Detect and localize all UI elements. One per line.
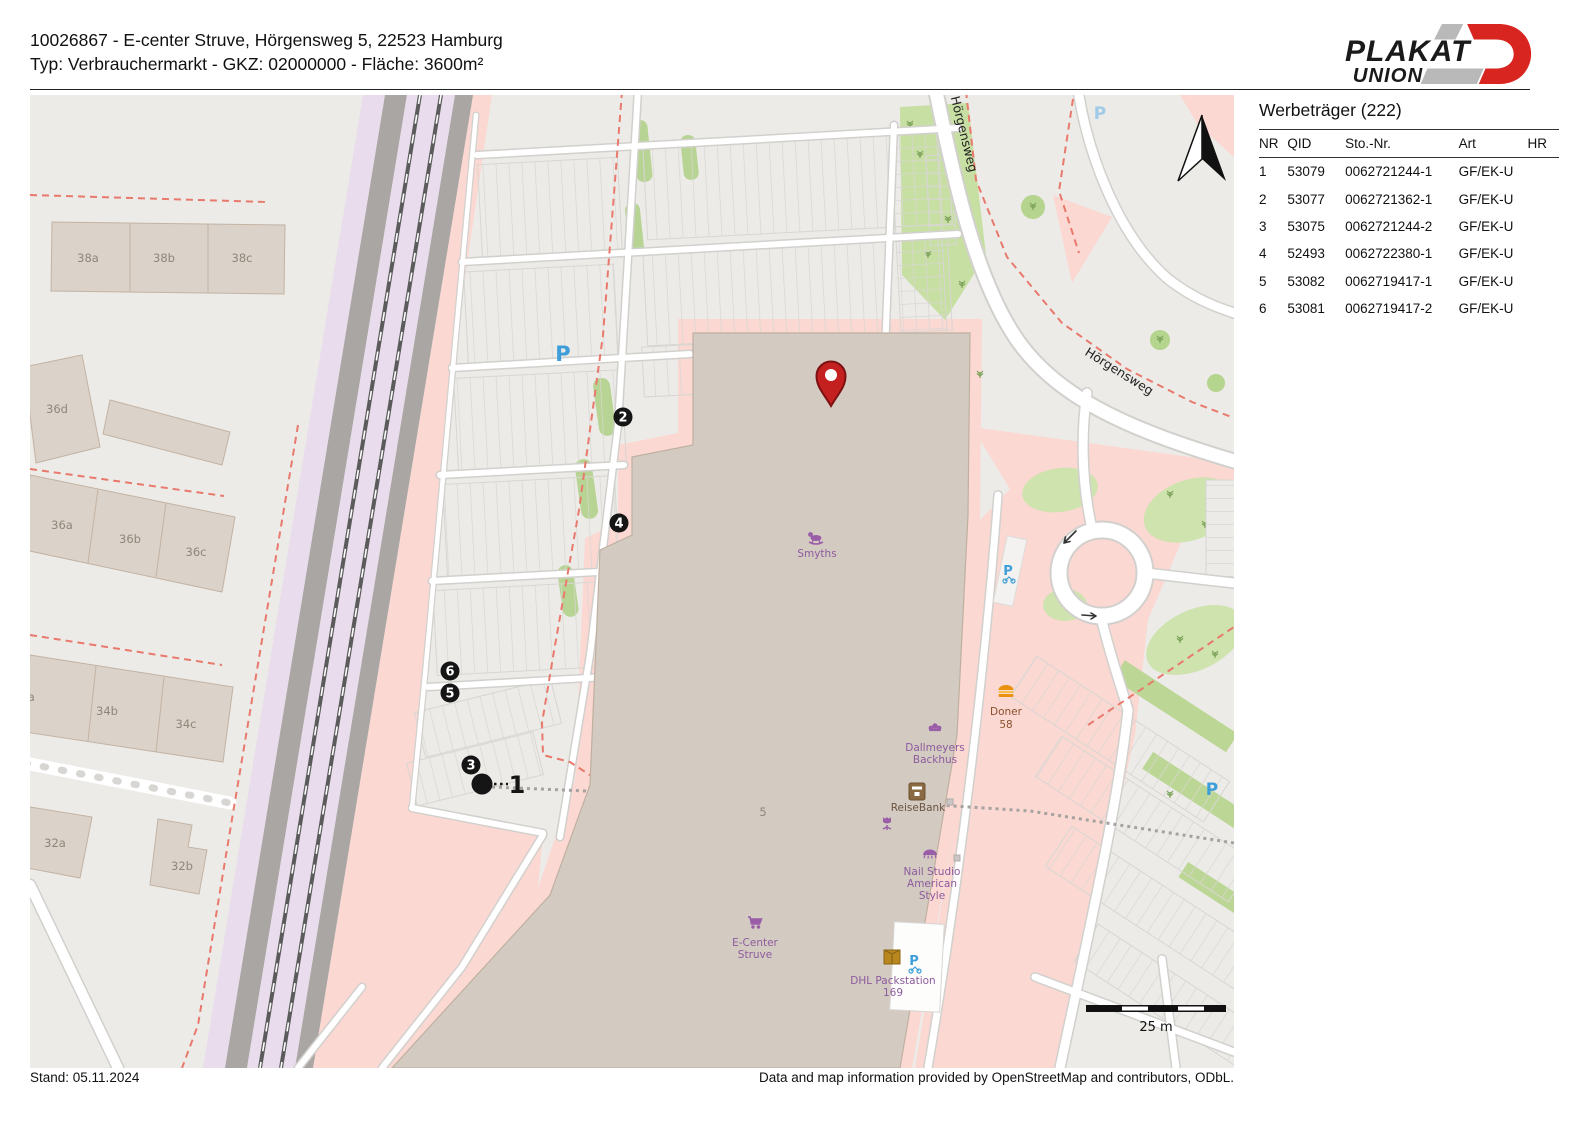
parking-p-bottom-icon: P	[1206, 780, 1218, 800]
cell-nr: 5	[1259, 268, 1287, 295]
header-divider	[30, 89, 1530, 90]
cell-hr	[1528, 240, 1559, 267]
bldg-label-32a: 32a	[44, 836, 66, 850]
cell-qid: 53079	[1287, 158, 1345, 186]
table-row: 5 53082 0062719417-1 GF/EK-U	[1259, 268, 1559, 295]
osm-attribution: Data and map information provided by Ope…	[759, 1070, 1234, 1085]
logo-word1: PLAKAT	[1345, 35, 1472, 68]
marker-1-dot	[472, 774, 493, 795]
cell-hr	[1528, 268, 1559, 295]
scale-label: 25 m	[1139, 1020, 1172, 1035]
logo-word2: UNION	[1353, 65, 1424, 86]
report-page: 10026867 - E-center Struve, Hörgensweg 5…	[0, 0, 1587, 1123]
svg-text:2: 2	[618, 411, 627, 426]
cell-qid: 53082	[1287, 268, 1345, 295]
atm-icon	[909, 783, 925, 800]
cell-art: GF/EK-U	[1459, 268, 1528, 295]
poi-label-doner-2: 58	[999, 719, 1012, 731]
cell-sto: 0062719417-1	[1345, 268, 1459, 295]
poi-label-dhl-2: 169	[883, 987, 903, 999]
cell-hr	[1528, 158, 1559, 186]
cell-sto: 0062722380-1	[1345, 240, 1459, 267]
map-canvas: 38a 38b 38c 36d 36a 36b 36c 34a 34b 34c …	[30, 95, 1234, 1068]
bldg-label-36d: 36d	[46, 402, 68, 416]
cell-hr	[1528, 295, 1559, 322]
parking-p-top-icon: P	[1094, 104, 1106, 124]
poi-label-doner-1: Doner	[990, 706, 1023, 718]
bldg-label-38a: 38a	[77, 251, 99, 265]
cell-hr	[1528, 213, 1559, 240]
cell-sto: 0062719417-2	[1345, 295, 1459, 322]
werbetraeger-table: NR QID Sto.-Nr. Art HR 1 53079 006272124…	[1259, 130, 1559, 322]
table-row: 1 53079 0062721244-1 GF/EK-U	[1259, 158, 1559, 186]
cell-nr: 1	[1259, 158, 1287, 186]
poi-label-dallmeyers-1: Dallmeyers	[905, 742, 965, 754]
table-row: 4 52493 0062722380-1 GF/EK-U	[1259, 240, 1559, 267]
poi-label-dallmeyers-2: Backhus	[913, 754, 957, 766]
table-row: 6 53081 0062719417-2 GF/EK-U	[1259, 295, 1559, 322]
cell-art: GF/EK-U	[1459, 158, 1528, 186]
col-sto: Sto.-Nr.	[1345, 130, 1459, 158]
plakat-union-logo: PLAKAT UNION	[1342, 22, 1537, 86]
col-art: Art	[1459, 130, 1528, 158]
bldg-label-32b: 32b	[171, 859, 193, 873]
logo-gray-bar-bottom	[1421, 69, 1484, 85]
marker-6: 6	[441, 662, 460, 681]
marker-5: 5	[441, 684, 460, 703]
stand-date: Stand: 05.11.2024	[30, 1070, 139, 1085]
cell-nr: 4	[1259, 240, 1287, 267]
poi-label-dhl-1: DHL Packstation	[850, 975, 935, 987]
marker-3: 3	[462, 756, 481, 775]
table-row: 2 53077 0062721362-1 GF/EK-U	[1259, 185, 1559, 212]
cell-nr: 2	[1259, 185, 1287, 212]
poi-label-nail-1: Nail Studio	[904, 866, 961, 878]
panel-title: Werbeträger (222)	[1259, 100, 1559, 130]
bldg-label-38c: 38c	[232, 251, 253, 265]
svg-text:P: P	[1003, 564, 1013, 579]
bldg-label-34a: 34a	[30, 690, 35, 704]
cell-qid: 53075	[1287, 213, 1345, 240]
svg-text:4: 4	[614, 517, 623, 532]
bldg-label-36c: 36c	[186, 545, 207, 559]
cell-sto: 0062721244-1	[1345, 158, 1459, 186]
marker-4: 4	[610, 514, 629, 533]
cell-nr: 6	[1259, 295, 1287, 322]
svg-text:3: 3	[466, 759, 475, 774]
parcel-box-icon	[884, 950, 900, 964]
cell-art: GF/EK-U	[1459, 185, 1528, 212]
bldg-label-34c: 34c	[176, 717, 197, 731]
svg-text:P: P	[909, 954, 919, 969]
page-title: 10026867 - E-center Struve, Hörgensweg 5…	[30, 30, 503, 51]
poi-label-nail-2: American	[907, 878, 957, 890]
bldg-label-38b: 38b	[153, 251, 175, 265]
bldg-label-34b: 34b	[96, 704, 118, 718]
cell-sto: 0062721362-1	[1345, 185, 1459, 212]
cell-qid: 53077	[1287, 185, 1345, 212]
poi-label-nail-3: Style	[919, 890, 945, 902]
svg-text:5: 5	[445, 687, 454, 702]
entrance-node	[954, 855, 960, 861]
marker-2: 2	[614, 408, 633, 427]
cell-hr	[1528, 185, 1559, 212]
poi-label-reisebank: ReiseBank	[891, 802, 946, 814]
table-header-row: NR QID Sto.-Nr. Art HR	[1259, 130, 1559, 158]
map: 38a 38b 38c 36d 36a 36b 36c 34a 34b 34c …	[30, 95, 1234, 1068]
col-hr: HR	[1528, 130, 1559, 158]
table-row: 3 53075 0062721244-2 GF/EK-U	[1259, 213, 1559, 240]
poi-label-smyths: Smyths	[797, 548, 836, 560]
house-number-5: 5	[759, 805, 766, 819]
poi-label-ecenter-2: Struve	[738, 949, 772, 961]
bldg-label-36a: 36a	[51, 518, 73, 532]
svg-text:6: 6	[445, 665, 454, 680]
cell-sto: 0062721244-2	[1345, 213, 1459, 240]
cell-qid: 53081	[1287, 295, 1345, 322]
cell-art: GF/EK-U	[1459, 295, 1528, 322]
cell-art: GF/EK-U	[1459, 213, 1528, 240]
bldg-label-36b: 36b	[119, 532, 141, 546]
werbetraeger-panel: Werbeträger (222) NR QID Sto.-Nr. Art HR…	[1259, 100, 1559, 322]
poi-label-ecenter-1: E-Center	[732, 937, 778, 949]
cell-art: GF/EK-U	[1459, 240, 1528, 267]
path-node	[947, 799, 953, 805]
fast-food-icon	[999, 685, 1014, 697]
page-subtitle: Typ: Verbrauchermarkt - GKZ: 02000000 - …	[30, 54, 483, 75]
col-qid: QID	[1287, 130, 1345, 158]
col-nr: NR	[1259, 130, 1287, 158]
parking-p-icon: P	[555, 342, 570, 366]
cell-qid: 52493	[1287, 240, 1345, 267]
cell-nr: 3	[1259, 213, 1287, 240]
marker-1-label: 1	[509, 771, 526, 799]
